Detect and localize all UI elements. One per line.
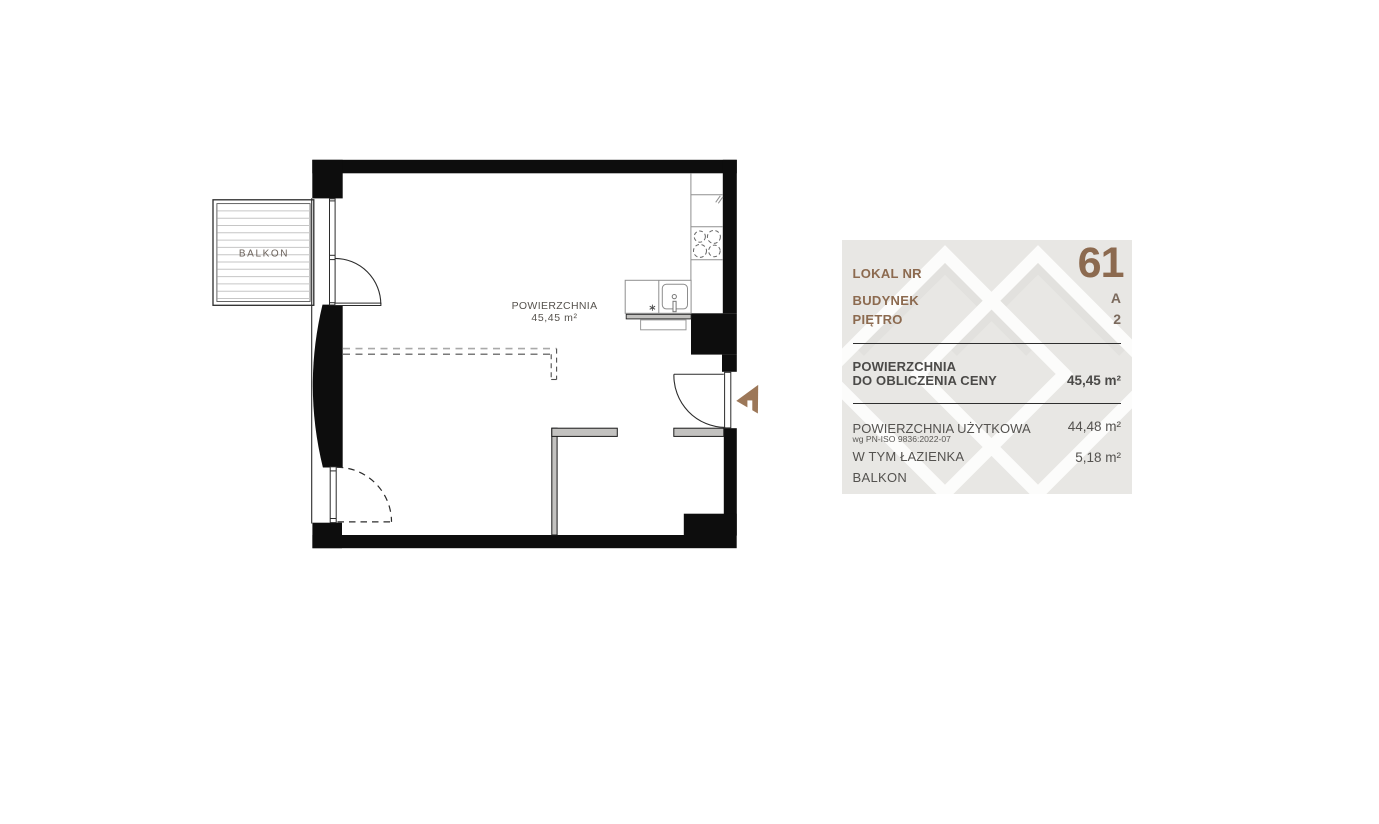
svg-text:45,45 m²: 45,45 m² (531, 312, 577, 324)
svg-text:BALKON: BALKON (239, 249, 289, 260)
svg-text:POWIERZCHNIA: POWIERZCHNIA (512, 300, 598, 312)
